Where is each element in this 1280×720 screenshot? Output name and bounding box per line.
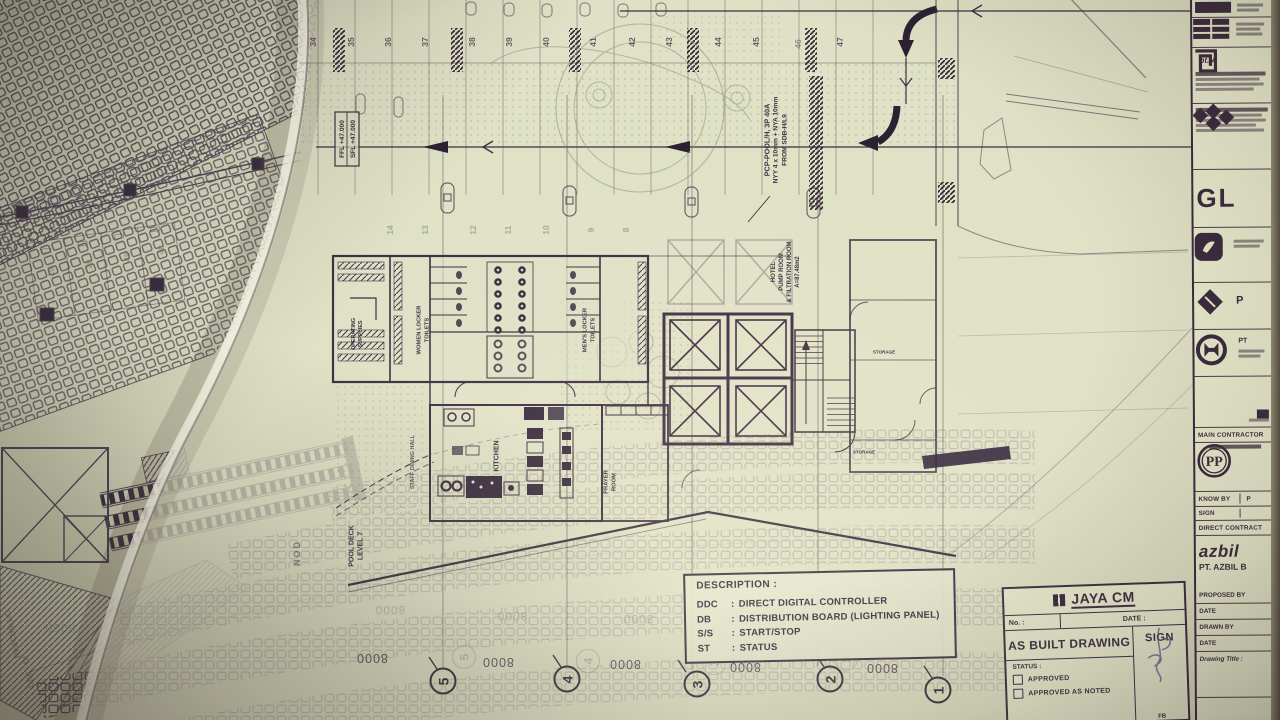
legend-def: STATUS bbox=[740, 641, 778, 653]
bay-number: 48 bbox=[156, 245, 166, 254]
grid-number: 36 bbox=[383, 37, 393, 46]
legend-term: DB bbox=[697, 613, 727, 625]
room-label-pool-deck: POOL DECKLEVEL 7 bbox=[349, 519, 366, 573]
grid-number: 34 bbox=[308, 37, 318, 46]
dimension-8000: 8000 bbox=[356, 651, 388, 665]
grid-number: 45 bbox=[751, 37, 761, 46]
legend-def: DIRECT DIGITAL CONTROLLER bbox=[739, 596, 888, 610]
azbil-logo-text: azbil bbox=[1199, 541, 1273, 562]
legend-colon: : bbox=[728, 642, 740, 653]
blueprint-photo: 34 35 36 37 38 39 40 41 42 43 44 45 46 4… bbox=[0, 0, 1280, 720]
strip-azbil-box: azbil PT. AZBIL B bbox=[1196, 535, 1276, 588]
strip-box-consultant: pt. A bbox=[1192, 47, 1272, 104]
grid-number: 43 bbox=[664, 37, 674, 46]
stamp-no-label: No. : bbox=[1005, 614, 1061, 630]
svg-text:PP: PP bbox=[1206, 455, 1224, 470]
stamp-drawing-type: AS BUILT DRAWING bbox=[1005, 627, 1133, 661]
ghost-grid-number: 13 bbox=[420, 225, 430, 234]
ghost-dimension: 8000 bbox=[375, 603, 406, 617]
bay-number: 20 bbox=[84, 259, 94, 268]
grid-number: 35 bbox=[346, 37, 356, 46]
pt-azbil-label: PT. AZBIL B bbox=[1199, 561, 1273, 572]
strip-box-gl: GL bbox=[1193, 169, 1273, 228]
dimension-8000: 8000 bbox=[866, 661, 898, 675]
strip-know-by-row: KNOW BY P bbox=[1195, 491, 1275, 507]
room-label-dining-hall: STAFF DINING HALL bbox=[410, 425, 416, 499]
ghost-grid-number: 8 bbox=[621, 228, 631, 233]
grid-number: 42 bbox=[627, 37, 637, 46]
room-label-mens-locker: MEN'S LOCKERTOILETS bbox=[583, 298, 598, 362]
approval-stamp-block: JAYA CM No. : DATE : AS BUILT DRAWING ST… bbox=[1002, 581, 1191, 720]
stamp-date-label: DATE : bbox=[1061, 613, 1185, 624]
grid-number: 46 bbox=[793, 39, 803, 48]
bay-number: 19 bbox=[46, 267, 56, 276]
approved-label: APPROVED bbox=[1028, 674, 1070, 682]
dimension-8000: 8000 bbox=[609, 657, 641, 671]
room-label-storage: STORAGE bbox=[853, 450, 875, 455]
grid-number: 40 bbox=[541, 37, 551, 46]
proposed-by-row: PROPOSED BY bbox=[1196, 587, 1276, 604]
stamp-sign-footnote: FB bbox=[1136, 713, 1188, 720]
bird-logo-icon bbox=[1194, 232, 1224, 262]
strip-box-empty bbox=[1195, 376, 1275, 428]
ghost-dimension: 8000 bbox=[623, 612, 654, 626]
spiral-logo-icon bbox=[1192, 48, 1218, 74]
strip-box-brick-logo bbox=[1192, 17, 1272, 48]
know-by-label: KNOW BY bbox=[1198, 494, 1240, 504]
strip-box-partial bbox=[1192, 0, 1272, 18]
k-circle-logo-icon bbox=[1194, 333, 1228, 367]
titleblock-strip: pt. A GL P bbox=[1190, 0, 1277, 720]
pp-logo-icon: PP bbox=[1195, 443, 1233, 481]
room-label-kitchen: KITCHEN bbox=[494, 434, 501, 478]
diamond-fragment: P bbox=[1236, 295, 1243, 307]
grid-number: 41 bbox=[588, 37, 598, 46]
grid-number: 44 bbox=[713, 37, 723, 46]
ghost-grid-number: 10 bbox=[541, 225, 551, 234]
k-fragment: PT bbox=[1238, 338, 1247, 345]
drawn-by-row: DRAWN BY bbox=[1196, 619, 1276, 636]
grid-bubble: 5 bbox=[430, 668, 457, 695]
grid-bubble: 4 bbox=[554, 666, 581, 693]
strip-sign-row: SIGN bbox=[1196, 506, 1276, 521]
ghost-grid-bubble: 4 bbox=[576, 649, 600, 673]
strip-box-bird bbox=[1194, 227, 1274, 283]
ghost-grid-number: 14 bbox=[385, 225, 395, 234]
legend-def: DISTRIBUTION BOARD (LIGHTING PANEL) bbox=[739, 609, 940, 624]
grid-number: 38 bbox=[467, 37, 477, 46]
strip-box-k-circle: PT bbox=[1194, 329, 1274, 377]
room-label-storage: STORAGE bbox=[873, 350, 895, 355]
legend-box: DESCRIPTION : DDC : DIRECT DIGITAL CONTR… bbox=[683, 568, 957, 664]
diamond-logo-icon bbox=[1194, 286, 1226, 318]
dimension-8000: 8000 bbox=[482, 655, 514, 669]
ghost-grid-number: 9 bbox=[586, 228, 596, 233]
legend-colon: : bbox=[727, 628, 739, 639]
road-label: NOD bbox=[292, 540, 302, 566]
date-row: DATE bbox=[1196, 635, 1276, 652]
approved-as-noted-label: APPROVED AS NOTED bbox=[1028, 687, 1110, 697]
approved-as-noted-checkbox bbox=[1013, 689, 1023, 699]
cubes-logo-icon bbox=[1193, 104, 1237, 132]
date-row: DATE bbox=[1196, 603, 1276, 620]
stamp-company: JAYA CM bbox=[1071, 589, 1135, 609]
legend-row: DB : DISTRIBUTION BOARD (LIGHTING PANEL) bbox=[697, 609, 954, 625]
room-label-prayer-room: PRAYERROOM bbox=[604, 464, 619, 500]
legend-term: DDC bbox=[697, 599, 727, 611]
legend-row: S/S : START/STOP bbox=[697, 623, 954, 639]
legend-colon: : bbox=[727, 599, 739, 610]
ghost-grid-number: 11 bbox=[503, 226, 513, 235]
grid-number: 47 bbox=[835, 37, 845, 46]
ghost-grid-bubble: 5 bbox=[452, 645, 476, 669]
strip-direct-contract-header: DIRECT CONTRACT bbox=[1196, 520, 1276, 536]
level-marker: FFL +47.000 SFL +47.000 bbox=[337, 111, 359, 167]
jaya-logo-icon bbox=[1053, 594, 1065, 606]
legend-title: DESCRIPTION : bbox=[696, 575, 953, 591]
stamp-status-label: STATUS : bbox=[1012, 660, 1127, 671]
bay-number: 49 bbox=[122, 252, 132, 261]
legend-term: S/S bbox=[697, 628, 727, 640]
room-label-pump-room: HOTELPUMP ROOM & FILTRATION ROOMA=87.48m… bbox=[770, 228, 802, 316]
sign-label: SIGN bbox=[1199, 509, 1241, 518]
approved-checkbox bbox=[1013, 675, 1023, 685]
legend-colon: : bbox=[727, 613, 739, 624]
main-contractor-label: MAIN CONTRACTOR bbox=[1198, 429, 1272, 440]
gl-logo-text: GL bbox=[1196, 183, 1236, 214]
ghost-dimension: 8000 bbox=[497, 609, 528, 623]
direct-contract-label: DIRECT CONTRACT bbox=[1199, 522, 1273, 533]
ghost-dimension: 8000 bbox=[45, 621, 76, 635]
photo-edge-shadow bbox=[1271, 0, 1280, 720]
brick-logo-icon bbox=[1192, 18, 1230, 40]
feeder-note: PCP-POOL/H, 3P 40A NYY 4 x 10mm + NYA 10… bbox=[763, 87, 790, 193]
grid-number: 37 bbox=[420, 37, 430, 46]
grid-bubble: 1 bbox=[925, 677, 952, 704]
stamp-approved-as-noted-row: APPROVED AS NOTED bbox=[1013, 685, 1128, 699]
strip-box-diamond: P bbox=[1194, 282, 1274, 330]
strip-box-contractor2 bbox=[1193, 103, 1273, 170]
room-label-women-locker: WOMEN LOCKERTOILETS bbox=[417, 298, 432, 362]
signature-scribble bbox=[1133, 625, 1185, 685]
grid-number: 39 bbox=[504, 37, 514, 46]
strip-box-pp: PP bbox=[1195, 442, 1275, 492]
legend-def: START/STOP bbox=[739, 626, 801, 638]
know-by-col2: P bbox=[1240, 494, 1250, 504]
grid-bubble: 3 bbox=[684, 671, 711, 698]
room-label-operating-supplies: OPERATINGSUPPLIES bbox=[351, 311, 365, 357]
legend-term: ST bbox=[698, 642, 728, 654]
stamp-approved-row: APPROVED bbox=[1013, 671, 1128, 685]
drawing-title-box: Drawing Title : bbox=[1197, 651, 1277, 698]
strip-main-contractor-header: MAIN CONTRACTOR bbox=[1195, 427, 1275, 443]
legend-row: DDC : DIRECT DIGITAL CONTROLLER bbox=[697, 594, 954, 610]
ghost-grid-number: 12 bbox=[468, 225, 478, 234]
legend-row: ST : STATUS bbox=[698, 638, 955, 654]
